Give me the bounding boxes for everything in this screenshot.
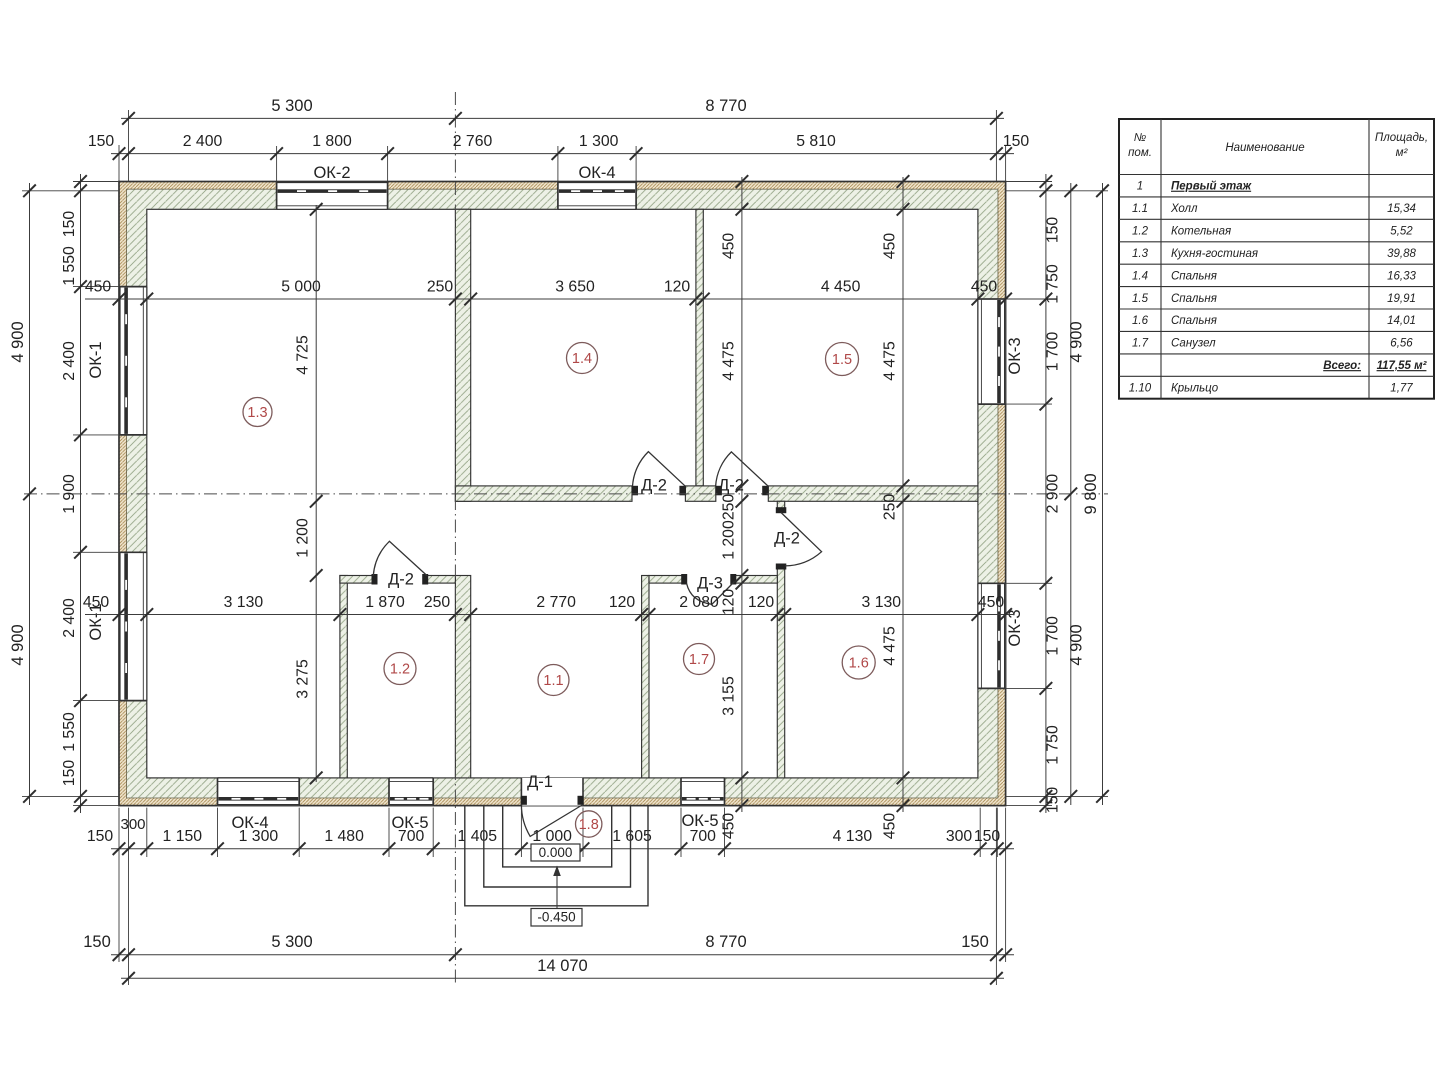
svg-text:450: 450 [882,233,899,260]
svg-text:0.000: 0.000 [539,845,573,860]
svg-text:150: 150 [1044,217,1061,244]
svg-text:1.6: 1.6 [849,656,869,672]
svg-text:№: № [1134,132,1147,144]
svg-text:300: 300 [120,816,145,833]
svg-text:250: 250 [720,494,737,521]
svg-text:450: 450 [971,279,998,296]
svg-text:Спальня: Спальня [1171,293,1217,305]
svg-text:120: 120 [748,594,775,611]
svg-text:450: 450 [720,233,737,260]
svg-text:5 000: 5 000 [281,279,321,296]
svg-text:19,91: 19,91 [1387,293,1416,305]
svg-text:1.5: 1.5 [1132,293,1149,305]
svg-text:1 150: 1 150 [163,828,203,845]
svg-text:ОК-3: ОК-3 [1006,337,1024,374]
svg-text:Площадь,: Площадь, [1375,132,1428,144]
svg-text:1.3: 1.3 [247,405,267,421]
svg-text:5 300: 5 300 [271,97,312,115]
svg-text:2 400: 2 400 [61,598,78,638]
svg-text:Первый этаж: Первый этаж [1171,181,1252,193]
svg-text:1 900: 1 900 [61,474,78,514]
svg-text:-0.450: -0.450 [537,910,575,925]
svg-text:1 750: 1 750 [1044,725,1061,765]
svg-text:5,52: 5,52 [1390,226,1413,238]
svg-text:1 870: 1 870 [365,594,405,611]
svg-text:ОК-2: ОК-2 [313,164,350,182]
svg-text:Д-1: Д-1 [527,773,553,791]
svg-text:117,55 м²: 117,55 м² [1377,360,1428,372]
svg-text:Д-2: Д-2 [718,477,744,495]
svg-text:250: 250 [424,594,451,611]
svg-text:4 900: 4 900 [1067,321,1085,362]
svg-text:Д-2: Д-2 [774,530,800,548]
svg-text:1 800: 1 800 [312,133,352,150]
svg-text:250: 250 [882,494,899,521]
svg-text:450: 450 [83,594,110,611]
svg-text:1.2: 1.2 [390,662,410,678]
svg-text:150: 150 [974,828,1001,845]
svg-text:150: 150 [83,933,111,951]
svg-text:Санузел: Санузел [1171,338,1216,350]
svg-text:Спальня: Спальня [1171,315,1217,327]
svg-text:ОК-5: ОК-5 [391,814,428,832]
svg-text:1 750: 1 750 [1044,264,1061,304]
svg-text:1 200: 1 200 [720,520,737,560]
svg-text:3 130: 3 130 [224,594,264,611]
svg-text:4 725: 4 725 [295,335,312,375]
svg-text:1.1: 1.1 [1132,203,1148,215]
svg-text:ОК-5: ОК-5 [681,812,718,830]
svg-text:450: 450 [882,813,899,840]
svg-text:1 405: 1 405 [458,828,498,845]
svg-text:ОК-4: ОК-4 [231,814,268,832]
svg-text:14,01: 14,01 [1387,315,1416,327]
svg-text:3 275: 3 275 [295,659,312,699]
svg-text:450: 450 [720,813,737,840]
svg-text:14 070: 14 070 [537,957,587,975]
svg-text:1.2: 1.2 [1132,226,1149,238]
svg-text:150: 150 [61,211,78,238]
svg-text:2 400: 2 400 [183,133,223,150]
svg-text:ОК-4: ОК-4 [578,164,615,182]
svg-text:4 475: 4 475 [882,626,899,666]
svg-text:1.3: 1.3 [1132,248,1149,260]
svg-text:3 155: 3 155 [720,676,737,716]
svg-text:Крыльцо: Крыльцо [1171,383,1219,395]
svg-text:пом.: пом. [1128,147,1152,159]
svg-text:2 770: 2 770 [536,594,576,611]
svg-text:1 000: 1 000 [532,828,572,845]
svg-text:Холл: Холл [1170,203,1198,215]
svg-text:Спальня: Спальня [1171,270,1217,282]
svg-text:Кухня-гостиная: Кухня-гостиная [1171,248,1258,260]
svg-text:1.7: 1.7 [689,652,709,668]
svg-text:2 080: 2 080 [679,594,719,611]
svg-text:1 700: 1 700 [1044,616,1061,656]
svg-text:250: 250 [427,279,454,296]
svg-text:2 400: 2 400 [61,341,78,381]
svg-text:300: 300 [946,828,973,845]
svg-text:6,56: 6,56 [1390,338,1413,350]
svg-text:1: 1 [1137,181,1143,193]
svg-text:4 475: 4 475 [882,341,899,381]
svg-text:39,88: 39,88 [1387,248,1416,260]
svg-text:120: 120 [664,279,691,296]
svg-text:1,77: 1,77 [1390,383,1413,395]
svg-text:450: 450 [85,279,112,296]
svg-text:ОК-1: ОК-1 [87,341,105,378]
svg-text:1.5: 1.5 [832,352,852,368]
svg-text:1.4: 1.4 [1132,270,1148,282]
svg-text:8 770: 8 770 [705,97,746,115]
svg-text:3 130: 3 130 [862,594,902,611]
svg-text:1.8: 1.8 [579,817,599,833]
svg-text:150: 150 [87,828,114,845]
svg-text:2 760: 2 760 [453,133,493,150]
svg-text:16,33: 16,33 [1387,270,1416,282]
svg-text:120: 120 [609,594,636,611]
svg-text:3 650: 3 650 [555,279,595,296]
svg-text:700: 700 [690,828,717,845]
svg-text:150: 150 [961,933,989,951]
svg-text:4 450: 4 450 [821,279,861,296]
svg-text:2 900: 2 900 [1044,474,1061,514]
svg-text:5 300: 5 300 [271,933,312,951]
svg-text:4 900: 4 900 [9,624,27,665]
svg-text:9 800: 9 800 [1082,473,1100,514]
svg-text:4 130: 4 130 [833,828,873,845]
svg-text:4 475: 4 475 [720,341,737,381]
svg-text:1.1: 1.1 [543,673,563,689]
svg-text:ОК-3: ОК-3 [1006,609,1024,646]
svg-text:1.10: 1.10 [1129,383,1152,395]
svg-text:150: 150 [1003,133,1030,150]
svg-text:Котельная: Котельная [1171,226,1231,238]
svg-text:Д-2: Д-2 [388,571,414,589]
svg-text:450: 450 [978,594,1005,611]
svg-text:4 900: 4 900 [9,321,27,362]
svg-text:150: 150 [61,760,78,787]
svg-text:1 200: 1 200 [295,518,312,558]
svg-text:Д-3: Д-3 [697,575,723,593]
svg-text:1 550: 1 550 [61,712,78,752]
svg-text:1 700: 1 700 [1044,332,1061,372]
svg-text:1.7: 1.7 [1132,338,1149,350]
svg-text:1.4: 1.4 [572,351,592,367]
svg-text:15,34: 15,34 [1387,203,1416,215]
svg-text:Всего:: Всего: [1323,360,1361,372]
svg-text:150: 150 [88,133,115,150]
svg-text:1 550: 1 550 [61,246,78,286]
svg-text:5 810: 5 810 [796,133,836,150]
svg-text:1 300: 1 300 [579,133,619,150]
svg-text:Д-2: Д-2 [641,477,667,495]
svg-text:1.6: 1.6 [1132,315,1149,327]
svg-text:м²: м² [1396,147,1409,159]
svg-text:120: 120 [720,589,737,616]
svg-text:Наименование: Наименование [1225,142,1304,154]
svg-text:1 480: 1 480 [324,828,364,845]
svg-text:1 605: 1 605 [612,828,652,845]
svg-text:4 900: 4 900 [1067,624,1085,665]
svg-text:150: 150 [1044,787,1061,814]
svg-text:8 770: 8 770 [705,933,746,951]
